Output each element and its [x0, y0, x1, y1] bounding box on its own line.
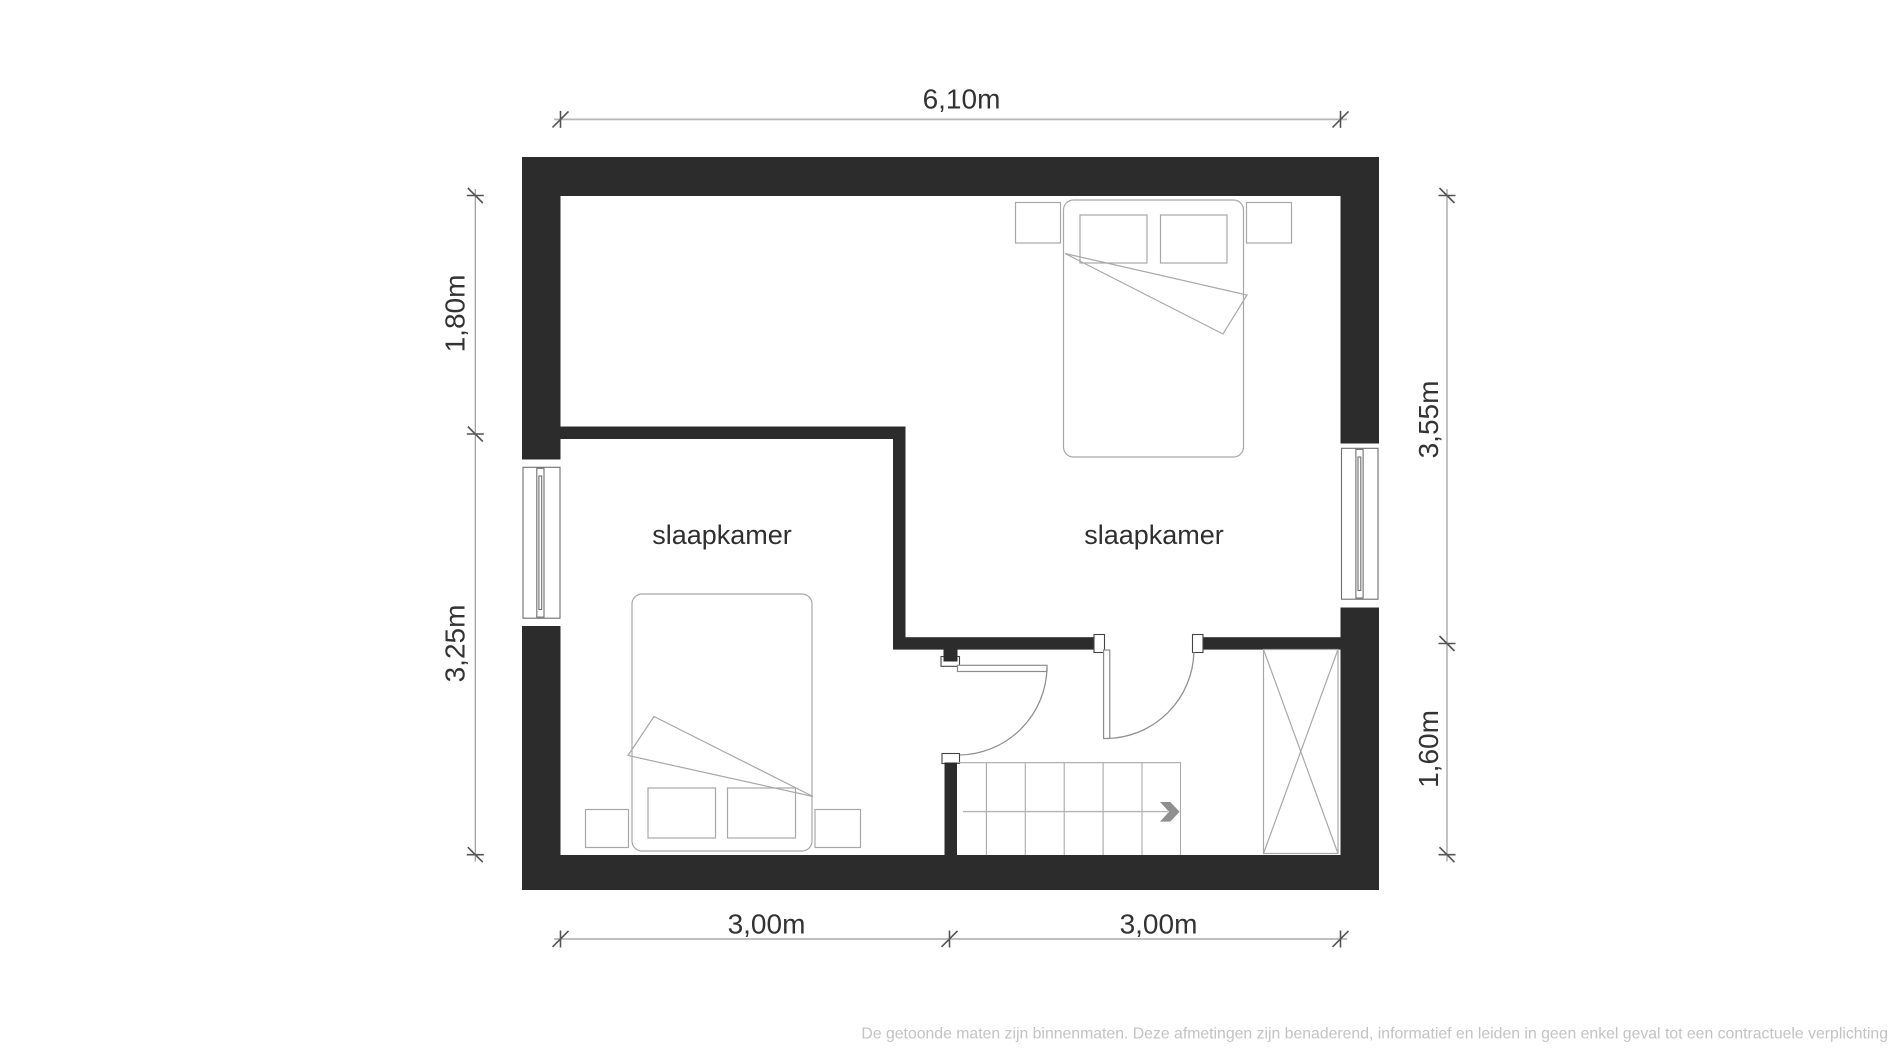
- svg-text:6,10m: 6,10m: [923, 84, 1001, 115]
- svg-text:slaapkamer: slaapkamer: [1084, 520, 1224, 550]
- svg-text:3,55m: 3,55m: [1413, 381, 1444, 459]
- svg-text:3,25m: 3,25m: [440, 605, 471, 683]
- svg-text:3,00m: 3,00m: [728, 909, 806, 940]
- svg-text:1,60m: 1,60m: [1413, 710, 1444, 788]
- svg-text:3,00m: 3,00m: [1120, 909, 1198, 940]
- svg-text:1,80m: 1,80m: [440, 275, 471, 353]
- svg-text:De getoonde maten zijn binnenm: De getoonde maten zijn binnenmaten. Deze…: [861, 1026, 1888, 1043]
- svg-text:slaapkamer: slaapkamer: [652, 520, 792, 550]
